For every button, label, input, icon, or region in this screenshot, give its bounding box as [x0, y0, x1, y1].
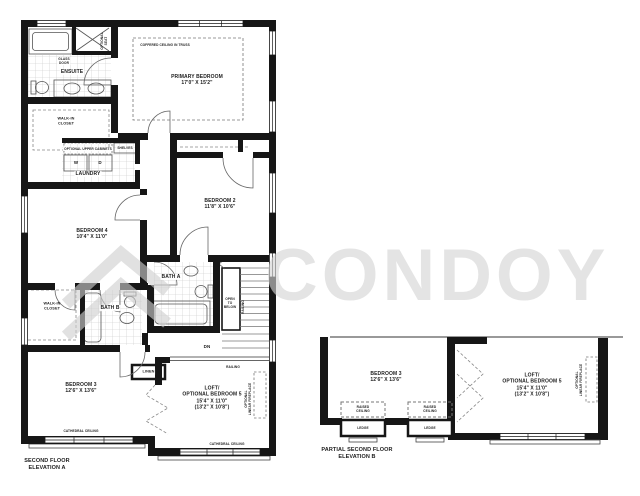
floor-plan-drawing: CONDOY [0, 0, 640, 496]
walk-in-closet-label: WALK-IN CLOSET [58, 116, 75, 125]
open-to-below-label: OPEN TO BELOW [224, 297, 236, 309]
plan-b-bedroom-3-label: BEDROOM 3 12'6" X 13'6" [370, 371, 401, 384]
optional-wall-zigzag [457, 350, 483, 422]
plan-b-loft-label: LOFT/ OPTIONAL BEDROOM 5 15'4" X 11'0" (… [502, 373, 561, 398]
optional-wall-zigzag [146, 385, 168, 434]
washer-label: W [74, 160, 78, 166]
railing-side-label: RAILING [241, 300, 245, 314]
dn-label: DN [204, 344, 211, 350]
cathedral-ceiling-label: CATHEDRAL CEILING [63, 429, 98, 433]
raised-ceiling-label: RAISED CEILING [422, 405, 438, 413]
optional-upper-cabinets-label: OPTIONAL UPPER CABINETS [63, 147, 113, 151]
bedroom-4-label: BEDROOM 4 10'4" X 11'0" [76, 228, 107, 241]
coffered-ceiling-label: COFFERED CEILING IN TRUSS [140, 43, 190, 47]
fireplace-outline [254, 372, 266, 418]
raised-ceiling-label: RAISED CEILING [355, 405, 371, 413]
ledge-label: LEDGE [357, 426, 368, 430]
loft-fireplace-label: OPTIONAL LINEAR FIREPLACE [244, 383, 252, 415]
optional-seat-label: OPTIONAL SEAT [100, 32, 108, 49]
bath-b-label: BATH B [99, 305, 120, 311]
watermark-text: CONDOY [265, 235, 609, 316]
plan-b-caption: PARTIAL SECOND FLOOR ELEVATION B [321, 447, 392, 461]
ledge-label: LEDGE [424, 426, 435, 430]
plan-a-caption: SECOND FLOOR ELEVATION A [24, 458, 70, 472]
laundry-label: LAUNDRY [75, 171, 102, 177]
fireplace-outline [586, 357, 597, 402]
loft-cathedral-ceiling-label: CATHEDRAL CEILING [209, 442, 244, 446]
loft-label: LOFT/ OPTIONAL BEDROOM 5 15'4" X 11'0" (… [182, 386, 241, 411]
bedroom-2-label: BEDROOM 2 11'8" X 10'6" [204, 198, 235, 211]
floor-plan-screenshot: CONDOY OPTIONAL SEAT GLASS DOOR ENSUITE … [0, 0, 640, 496]
bath-a-label: BATH A [161, 274, 182, 280]
linen-label: LINEN [142, 370, 156, 375]
glass-door-label: GLASS DOOR [57, 57, 70, 65]
shelves-label: SHELVES [116, 146, 133, 150]
railing-bottom-label: RAILING [226, 365, 240, 369]
plan-b-fireplace-label: OPTIONAL LINEAR FIREPLACE [575, 364, 583, 396]
bedroom-3-label: BEDROOM 3 12'6" X 13'6" [65, 382, 96, 395]
primary-bedroom-label: PRIMARY BEDROOM 17'0" X 15'2" [171, 74, 223, 87]
walk-in-closet-2-label: WALK-IN CLOSET [44, 301, 61, 310]
dryer-label: D [98, 160, 101, 166]
railing-line [170, 357, 269, 361]
ensuite-label: ENSUITE [60, 69, 84, 75]
